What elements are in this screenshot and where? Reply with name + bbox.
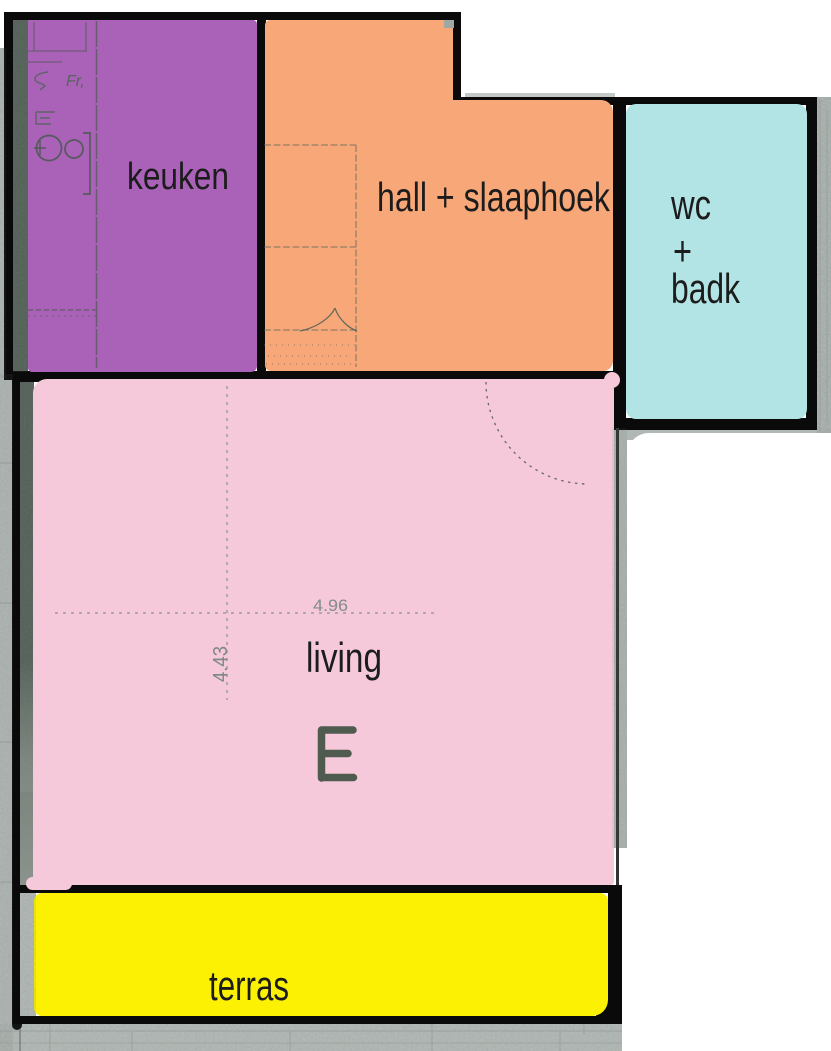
svg-text:wc: wc [670,181,711,228]
svg-text:4.96: 4.96 [313,596,348,615]
svg-text:living: living [306,634,382,681]
svg-text:hall + slaaphoek: hall + slaaphoek [377,174,610,220]
svg-text:Fr,: Fr, [66,73,85,90]
svg-text:badk: badk [671,265,741,312]
svg-text:4.43: 4.43 [210,646,232,682]
svg-text:terras: terras [209,962,289,1009]
svg-text:keuken: keuken [127,156,229,198]
